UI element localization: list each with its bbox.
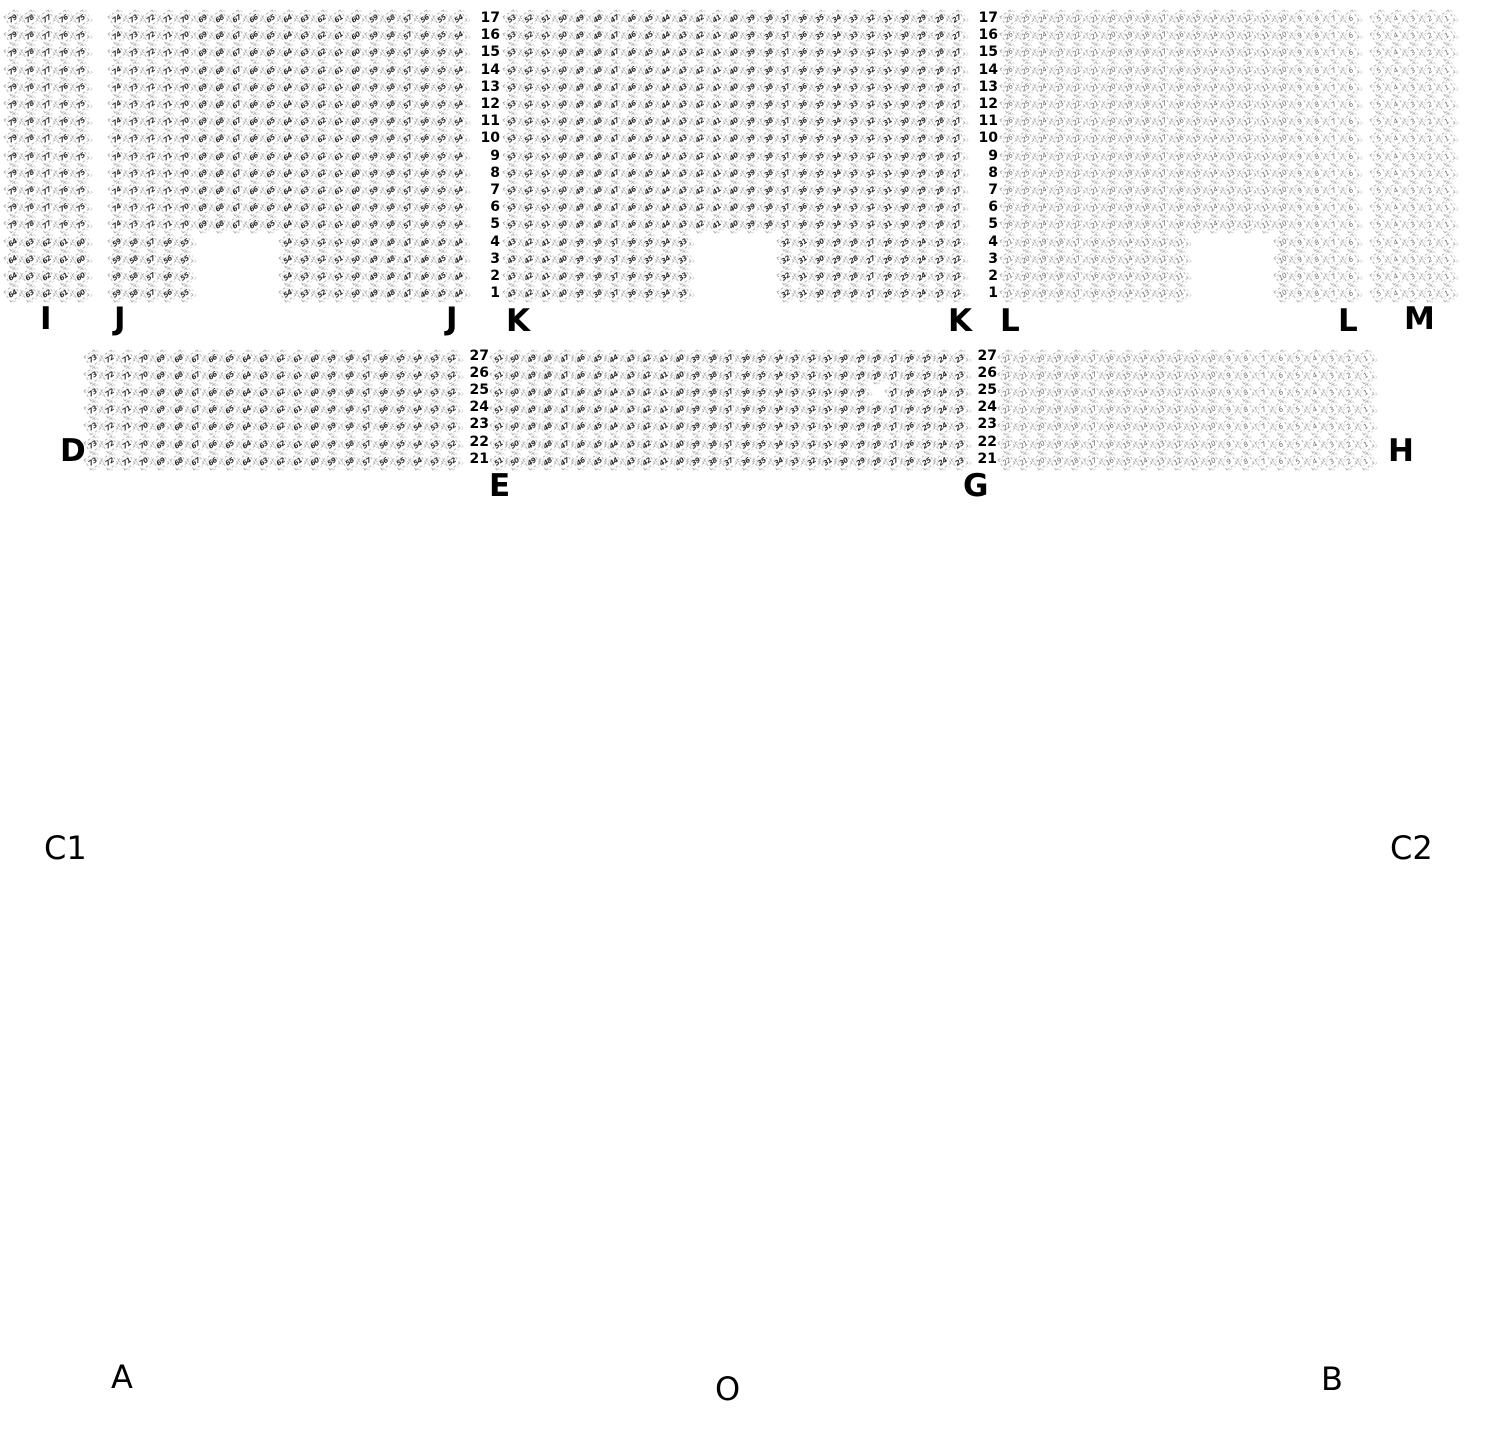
seat-L-r14-n17[interactable]: 17	[1153, 61, 1171, 79]
seat-I-r8-n79[interactable]: 79	[3, 164, 21, 182]
seat-K-r14-n29[interactable]: 29	[913, 61, 931, 79]
seat-K-r13-n48[interactable]: 48	[588, 78, 606, 96]
seat-L-r2-n7[interactable]: 7	[1324, 267, 1342, 285]
seat-EG-r21-n29[interactable]: 29	[851, 452, 869, 470]
seat-K-r8-n52[interactable]: 52	[520, 164, 538, 182]
seat-L-r17-n22[interactable]: 22	[1068, 9, 1086, 27]
seat-K-r10-n28[interactable]: 28	[930, 130, 948, 148]
seat-D-r23-n60[interactable]: 60	[306, 418, 324, 436]
seat-J-r8-n71[interactable]: 71	[159, 164, 177, 182]
seat-L-r17-n14[interactable]: 14	[1205, 9, 1223, 27]
seat-L-r1-n15[interactable]: 15	[1102, 285, 1120, 303]
seat-L-r15-n23[interactable]: 23	[1051, 44, 1069, 62]
seat-L-r13-n22[interactable]: 22	[1068, 78, 1086, 96]
seat-L-r10-n12[interactable]: 12	[1239, 130, 1257, 148]
seat-K-r5-n27[interactable]: 27	[947, 216, 965, 234]
seat-EG-r25-n43[interactable]: 43	[621, 384, 639, 402]
seat-K-r10-n38[interactable]: 38	[759, 130, 777, 148]
seat-EG-r24-n46[interactable]: 46	[572, 401, 590, 419]
seat-K-r1-n39[interactable]: 39	[571, 285, 589, 303]
seat-J-r6-n67[interactable]: 67	[227, 199, 245, 217]
seat-D-r27-n69[interactable]: 69	[152, 349, 170, 367]
seat-J-r4-n57[interactable]: 57	[142, 233, 160, 251]
seat-K-r3-n43[interactable]: 43	[502, 250, 520, 268]
seat-L-r9-n17[interactable]: 17	[1153, 147, 1171, 165]
seat-H-r22-n5[interactable]: 5	[1288, 435, 1306, 453]
seat-L-r6-n7[interactable]: 7	[1324, 199, 1342, 217]
seat-J-r8-n62[interactable]: 62	[313, 164, 331, 182]
seat-J-r5-n57[interactable]: 57	[398, 216, 416, 234]
seat-L-r12-n17[interactable]: 17	[1153, 95, 1171, 113]
seat-EG-r24-n38[interactable]: 38	[703, 401, 721, 419]
seat-L-r3-n12[interactable]: 12	[1153, 250, 1171, 268]
seat-K-r9-n52[interactable]: 52	[520, 147, 538, 165]
seat-J-r14-n59[interactable]: 59	[364, 61, 382, 79]
seat-J-r8-n70[interactable]: 70	[176, 164, 194, 182]
seat-K-r10-n52[interactable]: 52	[520, 130, 538, 148]
seat-D-r26-n62[interactable]: 62	[272, 367, 290, 385]
seat-L-r17-n19[interactable]: 19	[1119, 9, 1137, 27]
seat-D-r23-n54[interactable]: 54	[408, 418, 426, 436]
seat-K-r10-n53[interactable]: 53	[502, 130, 520, 148]
seat-L-r2-n12[interactable]: 12	[1153, 267, 1171, 285]
seat-J-r13-n55[interactable]: 55	[432, 78, 450, 96]
seat-EG-r22-n38[interactable]: 38	[703, 435, 721, 453]
seat-K-r15-n46[interactable]: 46	[622, 44, 640, 62]
seat-D-r26-n66[interactable]: 66	[203, 367, 221, 385]
seat-J-r9-n74[interactable]: 74	[107, 147, 125, 165]
seat-J-r2-n53[interactable]: 53	[296, 267, 314, 285]
seat-EG-r27-n31[interactable]: 31	[818, 349, 836, 367]
seat-I-r6-n75[interactable]: 75	[72, 199, 90, 217]
seat-EG-r23-n43[interactable]: 43	[621, 418, 639, 436]
seat-L-r14-n6[interactable]: 6	[1341, 61, 1359, 79]
seat-K-r1-n41[interactable]: 41	[537, 285, 555, 303]
seat-L-r14-n16[interactable]: 16	[1170, 61, 1188, 79]
seat-K-r6-n53[interactable]: 53	[502, 199, 520, 217]
seat-K-r3-n22[interactable]: 22	[947, 250, 965, 268]
seat-M-r3-n5[interactable]: 5	[1369, 250, 1387, 268]
seat-K-r13-n28[interactable]: 28	[930, 78, 948, 96]
seat-K-r5-n39[interactable]: 39	[742, 216, 760, 234]
seat-L-r8-n15[interactable]: 15	[1188, 164, 1206, 182]
seat-EG-r27-n38[interactable]: 38	[703, 349, 721, 367]
seat-L-r12-n11[interactable]: 11	[1256, 95, 1274, 113]
seat-J-r4-n53[interactable]: 53	[296, 233, 314, 251]
seat-EG-r21-n47[interactable]: 47	[555, 452, 573, 470]
seat-J-r12-n55[interactable]: 55	[432, 95, 450, 113]
seat-K-r6-n28[interactable]: 28	[930, 199, 948, 217]
seat-EG-r24-n31[interactable]: 31	[818, 401, 836, 419]
seat-H-r26-n22[interactable]: 22	[997, 367, 1015, 385]
seat-L-r8-n18[interactable]: 18	[1136, 164, 1154, 182]
seat-EG-r23-n31[interactable]: 31	[818, 418, 836, 436]
seat-K-r2-n35[interactable]: 35	[639, 267, 657, 285]
seat-L-r9-n20[interactable]: 20	[1102, 147, 1120, 165]
seat-I-r3-n60[interactable]: 60	[72, 250, 90, 268]
seat-J-r11-n61[interactable]: 61	[330, 113, 348, 131]
seat-L-r5-n13[interactable]: 13	[1222, 216, 1240, 234]
seat-L-r12-n10[interactable]: 10	[1273, 95, 1291, 113]
seat-H-r27-n20[interactable]: 20	[1032, 349, 1050, 367]
seat-K-r15-n27[interactable]: 27	[947, 44, 965, 62]
seat-J-r9-n66[interactable]: 66	[244, 147, 262, 165]
seat-D-r21-n61[interactable]: 61	[289, 452, 307, 470]
seat-H-r26-n19[interactable]: 19	[1049, 367, 1067, 385]
seat-K-r11-n42[interactable]: 42	[691, 113, 709, 131]
seat-L-r8-n26[interactable]: 26	[999, 164, 1017, 182]
seat-L-r7-n19[interactable]: 19	[1119, 181, 1137, 199]
seat-H-r26-n20[interactable]: 20	[1032, 367, 1050, 385]
seat-J-r14-n62[interactable]: 62	[313, 61, 331, 79]
seat-H-r27-n11[interactable]: 11	[1186, 349, 1204, 367]
seat-L-r4-n9[interactable]: 9	[1290, 233, 1308, 251]
seat-K-r3-n36[interactable]: 36	[622, 250, 640, 268]
seat-EG-r25-n39[interactable]: 39	[687, 384, 705, 402]
seat-H-r21-n18[interactable]: 18	[1066, 452, 1084, 470]
seat-EG-r26-n32[interactable]: 32	[802, 367, 820, 385]
seat-J-r16-n68[interactable]: 68	[210, 27, 228, 45]
seat-EG-r22-n30[interactable]: 30	[835, 435, 853, 453]
seat-H-r21-n22[interactable]: 22	[997, 452, 1015, 470]
seat-M-r8-n4[interactable]: 4	[1387, 164, 1405, 182]
seat-J-r7-n61[interactable]: 61	[330, 181, 348, 199]
seat-D-r22-n68[interactable]: 68	[169, 435, 187, 453]
seat-J-r5-n54[interactable]: 54	[449, 216, 467, 234]
seat-D-r21-n67[interactable]: 67	[186, 452, 204, 470]
seat-J-r17-n68[interactable]: 68	[210, 9, 228, 27]
seat-J-r13-n61[interactable]: 61	[330, 78, 348, 96]
seat-K-r17-n36[interactable]: 36	[793, 9, 811, 27]
seat-I-r10-n78[interactable]: 78	[21, 130, 39, 148]
seat-J-r3-n52[interactable]: 52	[313, 250, 331, 268]
seat-J-r10-n74[interactable]: 74	[107, 130, 125, 148]
seat-EG-r22-n45[interactable]: 45	[588, 435, 606, 453]
seat-L-r13-n16[interactable]: 16	[1170, 78, 1188, 96]
seat-K-r7-n38[interactable]: 38	[759, 181, 777, 199]
seat-K-r7-n52[interactable]: 52	[520, 181, 538, 199]
seat-EG-r26-n50[interactable]: 50	[506, 367, 524, 385]
seat-EG-r27-n35[interactable]: 35	[753, 349, 771, 367]
seat-K-r12-n50[interactable]: 50	[554, 95, 572, 113]
seat-L-r13-n21[interactable]: 21	[1085, 78, 1103, 96]
seat-J-r4-n48[interactable]: 48	[381, 233, 399, 251]
seat-K-r5-n31[interactable]: 31	[879, 216, 897, 234]
seat-J-r7-n66[interactable]: 66	[244, 181, 262, 199]
seat-L-r5-n18[interactable]: 18	[1136, 216, 1154, 234]
seat-EG-r25-n27[interactable]: 27	[884, 384, 902, 402]
seat-K-r10-n50[interactable]: 50	[554, 130, 572, 148]
seat-J-r3-n51[interactable]: 51	[330, 250, 348, 268]
seat-K-r9-n51[interactable]: 51	[537, 147, 555, 165]
seat-K-r7-n39[interactable]: 39	[742, 181, 760, 199]
seat-H-r27-n14[interactable]: 14	[1134, 349, 1152, 367]
seat-D-r22-n71[interactable]: 71	[118, 435, 136, 453]
seat-J-r17-n67[interactable]: 67	[227, 9, 245, 27]
seat-L-r16-n13[interactable]: 13	[1222, 27, 1240, 45]
seat-D-r27-n73[interactable]: 73	[83, 349, 101, 367]
seat-D-r25-n54[interactable]: 54	[408, 384, 426, 402]
seat-K-r13-n34[interactable]: 34	[827, 78, 845, 96]
seat-L-r9-n19[interactable]: 19	[1119, 147, 1137, 165]
seat-J-r3-n48[interactable]: 48	[381, 250, 399, 268]
seat-L-r2-n21[interactable]: 21	[999, 267, 1017, 285]
seat-L-r8-n19[interactable]: 19	[1119, 164, 1137, 182]
seat-J-r7-n73[interactable]: 73	[125, 181, 143, 199]
seat-M-r10-n5[interactable]: 5	[1369, 130, 1387, 148]
seat-J-r13-n65[interactable]: 65	[261, 78, 279, 96]
seat-J-r9-n62[interactable]: 62	[313, 147, 331, 165]
seat-K-r8-n32[interactable]: 32	[862, 164, 880, 182]
seat-H-r22-n2[interactable]: 2	[1339, 435, 1357, 453]
seat-L-r7-n16[interactable]: 16	[1170, 181, 1188, 199]
seat-H-r22-n21[interactable]: 21	[1015, 435, 1033, 453]
seat-K-r14-n37[interactable]: 37	[776, 61, 794, 79]
seat-K-r13-n35[interactable]: 35	[810, 78, 828, 96]
seat-EG-r25-n41[interactable]: 41	[654, 384, 672, 402]
seat-L-r13-n23[interactable]: 23	[1051, 78, 1069, 96]
seat-J-r6-n68[interactable]: 68	[210, 199, 228, 217]
seat-J-r5-n71[interactable]: 71	[159, 216, 177, 234]
seat-L-r16-n19[interactable]: 19	[1119, 27, 1137, 45]
seat-H-r27-n9[interactable]: 9	[1220, 349, 1238, 367]
seat-K-r15-n44[interactable]: 44	[656, 44, 674, 62]
seat-L-r16-n22[interactable]: 22	[1068, 27, 1086, 45]
seat-K-r14-n32[interactable]: 32	[862, 61, 880, 79]
seat-I-r4-n62[interactable]: 62	[38, 233, 56, 251]
seat-L-r16-n10[interactable]: 10	[1273, 27, 1291, 45]
seat-K-r16-n47[interactable]: 47	[605, 27, 623, 45]
seat-EG-r24-n32[interactable]: 32	[802, 401, 820, 419]
seat-J-r4-n45[interactable]: 45	[432, 233, 450, 251]
seat-I-r7-n75[interactable]: 75	[72, 181, 90, 199]
seat-J-r13-n66[interactable]: 66	[244, 78, 262, 96]
seat-J-r14-n70[interactable]: 70	[176, 61, 194, 79]
seat-D-r21-n68[interactable]: 68	[169, 452, 187, 470]
seat-H-r22-n15[interactable]: 15	[1117, 435, 1135, 453]
seat-L-r3-n7[interactable]: 7	[1324, 250, 1342, 268]
seat-H-r23-n21[interactable]: 21	[1015, 418, 1033, 436]
seat-M-r7-n1[interactable]: 1	[1438, 181, 1456, 199]
seat-L-r13-n13[interactable]: 13	[1222, 78, 1240, 96]
seat-L-r15-n14[interactable]: 14	[1205, 44, 1223, 62]
seat-K-r10-n49[interactable]: 49	[571, 130, 589, 148]
seat-J-r8-n72[interactable]: 72	[142, 164, 160, 182]
seat-H-r22-n20[interactable]: 20	[1032, 435, 1050, 453]
seat-M-r2-n4[interactable]: 4	[1387, 267, 1405, 285]
seat-H-r26-n6[interactable]: 6	[1271, 367, 1289, 385]
seat-D-r24-n55[interactable]: 55	[391, 401, 409, 419]
seat-J-r2-n54[interactable]: 54	[278, 267, 296, 285]
seat-L-r13-n15[interactable]: 15	[1188, 78, 1206, 96]
seat-EG-r27-n41[interactable]: 41	[654, 349, 672, 367]
seat-D-r24-n69[interactable]: 69	[152, 401, 170, 419]
seat-K-r16-n35[interactable]: 35	[810, 27, 828, 45]
seat-EG-r27-n32[interactable]: 32	[802, 349, 820, 367]
seat-J-r6-n60[interactable]: 60	[347, 199, 365, 217]
seat-EG-r24-n27[interactable]: 27	[884, 401, 902, 419]
seat-M-r14-n3[interactable]: 3	[1404, 61, 1422, 79]
seat-L-r15-n22[interactable]: 22	[1068, 44, 1086, 62]
seat-K-r4-n37[interactable]: 37	[605, 233, 623, 251]
seat-M-r5-n1[interactable]: 1	[1438, 216, 1456, 234]
seat-EG-r21-n48[interactable]: 48	[539, 452, 557, 470]
seat-L-r10-n9[interactable]: 9	[1290, 130, 1308, 148]
seat-L-r8-n21[interactable]: 21	[1085, 164, 1103, 182]
seat-K-r16-n42[interactable]: 42	[691, 27, 709, 45]
seat-K-r14-n46[interactable]: 46	[622, 61, 640, 79]
seat-M-r17-n3[interactable]: 3	[1404, 9, 1422, 27]
seat-H-r26-n14[interactable]: 14	[1134, 367, 1152, 385]
seat-J-r10-n56[interactable]: 56	[415, 130, 433, 148]
seat-K-r16-n29[interactable]: 29	[913, 27, 931, 45]
seat-K-r7-n51[interactable]: 51	[537, 181, 555, 199]
seat-L-r3-n20[interactable]: 20	[1017, 250, 1035, 268]
seat-L-r2-n9[interactable]: 9	[1290, 267, 1308, 285]
seat-J-r4-n59[interactable]: 59	[107, 233, 125, 251]
seat-H-r26-n5[interactable]: 5	[1288, 367, 1306, 385]
seat-K-r11-n53[interactable]: 53	[502, 113, 520, 131]
seat-K-r17-n37[interactable]: 37	[776, 9, 794, 27]
seat-J-r11-n67[interactable]: 67	[227, 113, 245, 131]
seat-M-r16-n4[interactable]: 4	[1387, 27, 1405, 45]
seat-J-r9-n67[interactable]: 67	[227, 147, 245, 165]
seat-K-r1-n38[interactable]: 38	[588, 285, 606, 303]
seat-EG-r24-n43[interactable]: 43	[621, 401, 639, 419]
seat-J-r12-n59[interactable]: 59	[364, 95, 382, 113]
seat-EG-r25-n48[interactable]: 48	[539, 384, 557, 402]
seat-L-r11-n15[interactable]: 15	[1188, 113, 1206, 131]
seat-K-r7-n45[interactable]: 45	[639, 181, 657, 199]
seat-I-r16-n76[interactable]: 76	[55, 27, 73, 45]
seat-H-r23-n7[interactable]: 7	[1254, 418, 1272, 436]
seat-L-r9-n24[interactable]: 24	[1034, 147, 1052, 165]
seat-D-r22-n54[interactable]: 54	[408, 435, 426, 453]
seat-K-r11-n50[interactable]: 50	[554, 113, 572, 131]
seat-L-r4-n17[interactable]: 17	[1068, 233, 1086, 251]
seat-K-r17-n38[interactable]: 38	[759, 9, 777, 27]
seat-J-r13-n73[interactable]: 73	[125, 78, 143, 96]
seat-K-r1-n34[interactable]: 34	[656, 285, 674, 303]
seat-J-r5-n72[interactable]: 72	[142, 216, 160, 234]
seat-I-r3-n61[interactable]: 61	[55, 250, 73, 268]
seat-J-r15-n70[interactable]: 70	[176, 44, 194, 62]
seat-L-r11-n8[interactable]: 8	[1307, 113, 1325, 131]
seat-M-r17-n4[interactable]: 4	[1387, 9, 1405, 27]
seat-L-r1-n13[interactable]: 13	[1136, 285, 1154, 303]
seat-K-r15-n28[interactable]: 28	[930, 44, 948, 62]
seat-EG-r21-n33[interactable]: 33	[786, 452, 804, 470]
seat-D-r21-n65[interactable]: 65	[220, 452, 238, 470]
seat-K-r9-n30[interactable]: 30	[896, 147, 914, 165]
seat-J-r3-n47[interactable]: 47	[398, 250, 416, 268]
seat-M-r5-n3[interactable]: 3	[1404, 216, 1422, 234]
seat-L-r14-n14[interactable]: 14	[1205, 61, 1223, 79]
seat-K-r12-n43[interactable]: 43	[673, 95, 691, 113]
seat-J-r7-n55[interactable]: 55	[432, 181, 450, 199]
seat-L-r5-n19[interactable]: 19	[1119, 216, 1137, 234]
seat-K-r17-n44[interactable]: 44	[656, 9, 674, 27]
seat-M-r6-n2[interactable]: 2	[1421, 199, 1439, 217]
seat-H-r22-n3[interactable]: 3	[1322, 435, 1340, 453]
seat-L-r6-n14[interactable]: 14	[1205, 199, 1223, 217]
seat-K-r7-n46[interactable]: 46	[622, 181, 640, 199]
seat-J-r15-n72[interactable]: 72	[142, 44, 160, 62]
seat-J-r16-n56[interactable]: 56	[415, 27, 433, 45]
seat-K-r8-n48[interactable]: 48	[588, 164, 606, 182]
seat-H-r21-n14[interactable]: 14	[1134, 452, 1152, 470]
seat-J-r1-n57[interactable]: 57	[142, 285, 160, 303]
seat-EG-r26-n26[interactable]: 26	[901, 367, 919, 385]
seat-M-r6-n5[interactable]: 5	[1369, 199, 1387, 217]
seat-K-r15-n39[interactable]: 39	[742, 44, 760, 62]
seat-M-r12-n3[interactable]: 3	[1404, 95, 1422, 113]
seat-K-r9-n35[interactable]: 35	[810, 147, 828, 165]
seat-K-r8-n34[interactable]: 34	[827, 164, 845, 182]
seat-K-r12-n36[interactable]: 36	[793, 95, 811, 113]
seat-K-r15-n40[interactable]: 40	[725, 44, 743, 62]
seat-K-r16-n30[interactable]: 30	[896, 27, 914, 45]
seat-J-r7-n54[interactable]: 54	[449, 181, 467, 199]
seat-J-r12-n56[interactable]: 56	[415, 95, 433, 113]
seat-J-r6-n65[interactable]: 65	[261, 199, 279, 217]
seat-K-r14-n36[interactable]: 36	[793, 61, 811, 79]
seat-L-r5-n11[interactable]: 11	[1256, 216, 1274, 234]
seat-EG-r24-n40[interactable]: 40	[670, 401, 688, 419]
seat-H-r25-n4[interactable]: 4	[1305, 384, 1323, 402]
seat-J-r12-n61[interactable]: 61	[330, 95, 348, 113]
seat-H-r26-n4[interactable]: 4	[1305, 367, 1323, 385]
seat-K-r14-n50[interactable]: 50	[554, 61, 572, 79]
seat-EG-r23-n48[interactable]: 48	[539, 418, 557, 436]
seat-L-r5-n16[interactable]: 16	[1170, 216, 1188, 234]
seat-M-r17-n1[interactable]: 1	[1438, 9, 1456, 27]
seat-H-r25-n22[interactable]: 22	[997, 384, 1015, 402]
seat-D-r21-n71[interactable]: 71	[118, 452, 136, 470]
seat-D-r25-n70[interactable]: 70	[135, 384, 153, 402]
seat-K-r4-n35[interactable]: 35	[639, 233, 657, 251]
seat-M-r3-n3[interactable]: 3	[1404, 250, 1422, 268]
seat-I-r13-n77[interactable]: 77	[38, 78, 56, 96]
seat-J-r12-n63[interactable]: 63	[296, 95, 314, 113]
seat-J-r5-n62[interactable]: 62	[313, 216, 331, 234]
seat-K-r14-n27[interactable]: 27	[947, 61, 965, 79]
seat-D-r24-n73[interactable]: 73	[83, 401, 101, 419]
seat-EG-r22-n27[interactable]: 27	[884, 435, 902, 453]
seat-K-r13-n52[interactable]: 52	[520, 78, 538, 96]
seat-K-r9-n41[interactable]: 41	[708, 147, 726, 165]
seat-K-r10-n31[interactable]: 31	[879, 130, 897, 148]
seat-L-r1-n7[interactable]: 7	[1324, 285, 1342, 303]
seat-H-r26-n13[interactable]: 13	[1151, 367, 1169, 385]
seat-H-r27-n12[interactable]: 12	[1168, 349, 1186, 367]
seat-K-r13-n44[interactable]: 44	[656, 78, 674, 96]
seat-D-r27-n70[interactable]: 70	[135, 349, 153, 367]
seat-H-r23-n11[interactable]: 11	[1186, 418, 1204, 436]
seat-D-r21-n64[interactable]: 64	[237, 452, 255, 470]
seat-D-r21-n69[interactable]: 69	[152, 452, 170, 470]
seat-K-r12-n51[interactable]: 51	[537, 95, 555, 113]
seat-L-r4-n15[interactable]: 15	[1102, 233, 1120, 251]
seat-H-r22-n16[interactable]: 16	[1100, 435, 1118, 453]
seat-J-r4-n58[interactable]: 58	[125, 233, 143, 251]
seat-EG-r26-n25[interactable]: 25	[917, 367, 935, 385]
seat-L-r13-n10[interactable]: 10	[1273, 78, 1291, 96]
seat-I-r11-n79[interactable]: 79	[3, 113, 21, 131]
seat-K-r16-n45[interactable]: 45	[639, 27, 657, 45]
seat-J-r15-n67[interactable]: 67	[227, 44, 245, 62]
seat-EG-r25-n29[interactable]: 29	[851, 384, 869, 402]
